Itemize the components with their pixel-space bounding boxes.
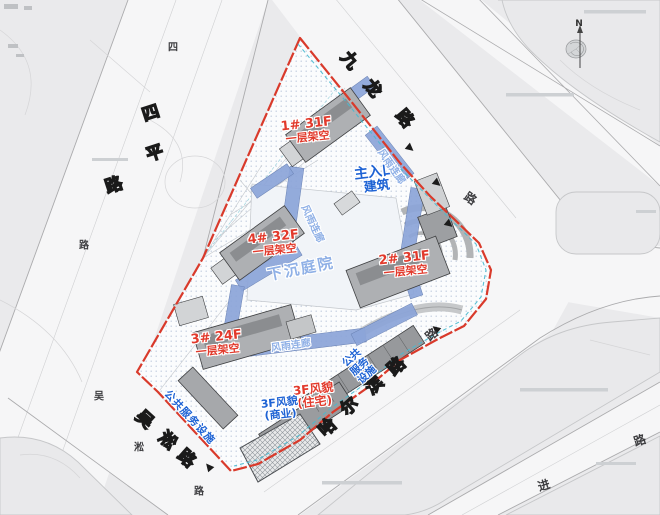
base-map-graphics — [0, 0, 660, 515]
site-plan-map: 九 龙 路 四 平 路 吴 淞 路 哈 尔 滨 路 四 路 吴 淞 路 路 路 … — [0, 0, 660, 515]
